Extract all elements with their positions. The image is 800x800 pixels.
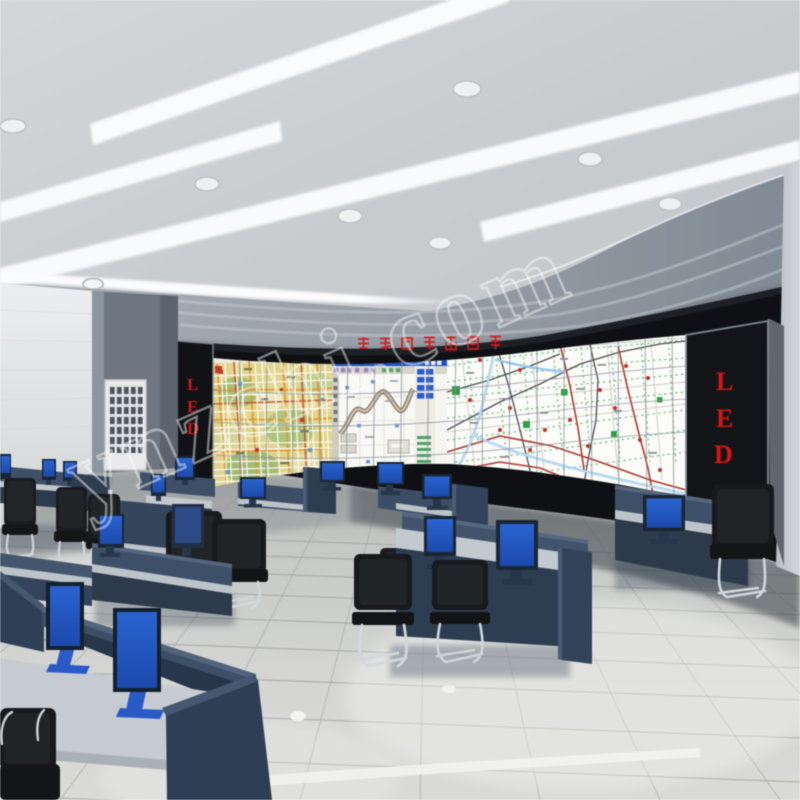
svg-text:D: D [714,440,733,469]
svg-text:L: L [716,367,733,396]
svg-text:E: E [716,404,733,433]
